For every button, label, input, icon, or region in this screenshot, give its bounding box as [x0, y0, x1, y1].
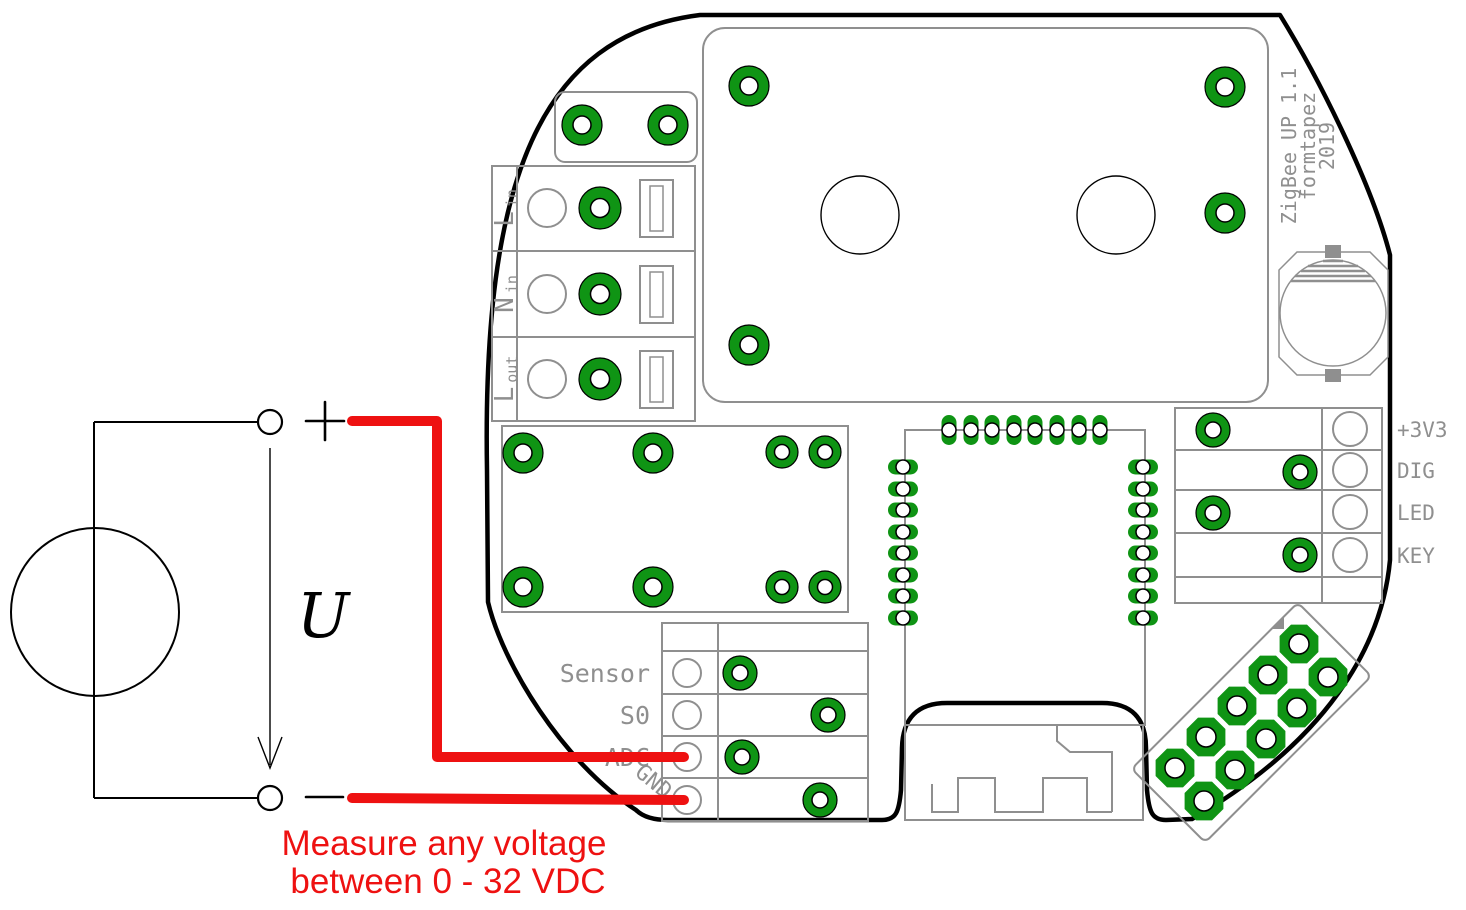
terminal-label-l-out: Lout [490, 356, 521, 403]
voltage-arrow [258, 448, 282, 768]
terminal-slots [640, 180, 673, 408]
pin-label-key: KEY [1397, 544, 1435, 568]
pin-label-led: LED [1397, 501, 1435, 525]
voltage-label: U [297, 579, 351, 652]
programming-header-2x5 [1132, 603, 1372, 843]
minus-terminal [258, 786, 282, 810]
mounting-hole [821, 176, 899, 254]
io-header: Sensor S0 ADC GND [560, 623, 868, 821]
aux-pad-block [555, 92, 697, 162]
pcb-board: Lin Nin Lout [487, 15, 1448, 842]
mains-terminal-block: Lin Nin Lout [490, 166, 695, 421]
usb-connector [905, 725, 1143, 820]
module-right-pads [1128, 460, 1158, 626]
voltage-source-circuit: U [11, 402, 351, 810]
minus-probe-wire [352, 798, 684, 800]
plus-terminal [258, 410, 282, 434]
terminal-label-l-in: Lin [490, 189, 521, 227]
usb-trace [1057, 725, 1112, 812]
signal-header: +3V3 DIG LED KEY [1175, 408, 1448, 603]
pin-label-sensor: Sensor [560, 659, 650, 688]
annotation-line1: Measure any voltage [282, 824, 607, 863]
board-title: ZigBee UP 1.1 formtapez 2019 [1277, 68, 1339, 225]
wiring-diagram: U Lin Nin Lo [0, 0, 1466, 910]
mid-left-pad-block [502, 426, 848, 612]
zigbee-module-footprint [888, 415, 1158, 725]
pcb-measure-diagram: U Lin Nin Lo [0, 0, 1466, 910]
annotation: Measure any voltage between 0 - 32 VDC [282, 824, 607, 901]
mounting-hole [1077, 176, 1155, 254]
usb-trace [932, 778, 1112, 812]
pin-label-dig: DIG [1397, 459, 1435, 483]
capacitor-footprint [1279, 245, 1388, 382]
pin-label-3v3: +3V3 [1397, 418, 1448, 442]
pin-label-s0: S0 [620, 701, 650, 730]
plus-sign-icon [306, 402, 344, 440]
relay-footprint [703, 28, 1268, 402]
module-left-pads [888, 460, 918, 626]
capacitor-polarity-hatch [1291, 261, 1375, 281]
board-title-line3: 2019 [1315, 122, 1339, 170]
annotation-line2: between 0 - 32 VDC [290, 862, 605, 901]
